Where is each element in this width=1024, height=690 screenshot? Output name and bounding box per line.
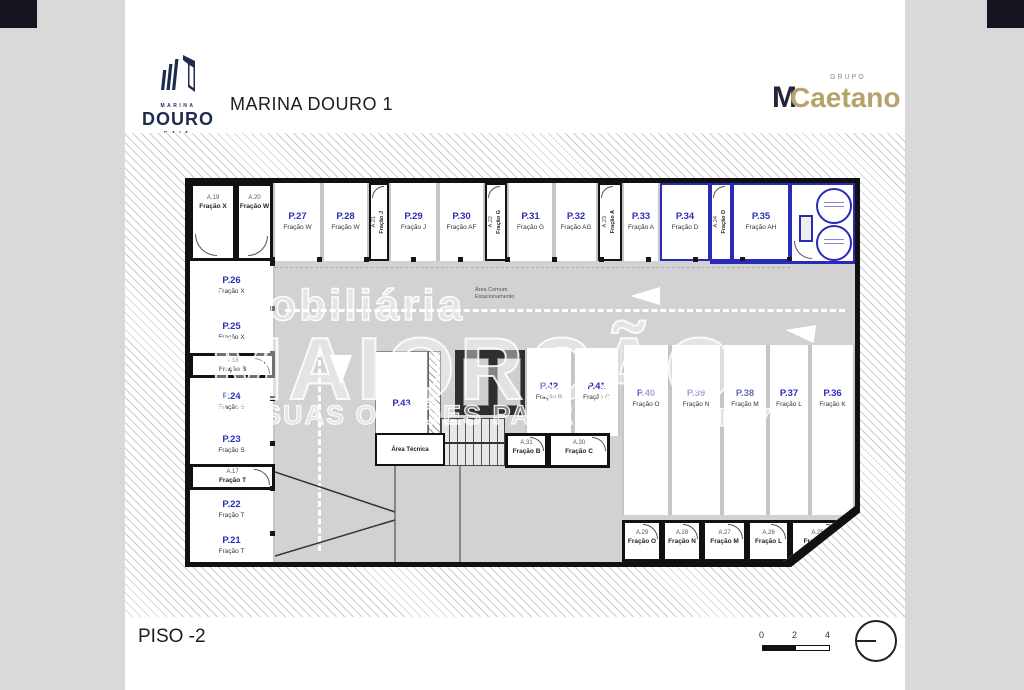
- door-arc: [254, 469, 270, 485]
- parking-p33: P.33 Fração A: [622, 183, 660, 261]
- door-arc: [713, 186, 725, 198]
- parking-p35: P.35 Fração AH: [732, 183, 790, 261]
- storage-a29: A.29 Fração O: [622, 520, 662, 562]
- door-arc: [771, 524, 786, 539]
- elevator-cab: [497, 358, 521, 406]
- scale-tick-2: 2: [792, 630, 797, 640]
- right-margin-band: [905, 0, 1024, 690]
- elevator-cab: [463, 358, 489, 406]
- parking-p37: P.37 Fração L: [768, 345, 810, 515]
- storage-a24: A.24 Fração D: [710, 183, 732, 261]
- storage-a19: A.19 Fração X: [190, 183, 236, 261]
- storage-a18: A.18 Fração S: [190, 353, 275, 378]
- parking-p25: P.25 Fração X: [190, 311, 275, 353]
- north-indicator-icon: [855, 620, 897, 662]
- lane-arrow-icon: [630, 287, 660, 305]
- door-arc: [530, 437, 544, 451]
- ramp: [275, 466, 620, 562]
- floor-label: PISO -2: [138, 626, 206, 648]
- grupo-mcaetano-logo: GRUPO M Caetano: [772, 74, 922, 115]
- stair-rail: [441, 442, 504, 444]
- parking-p36: P.36 Fração K: [810, 345, 855, 515]
- storage-a20: A.20 Fração W: [236, 183, 273, 261]
- equipment-box-icon: [799, 215, 813, 242]
- storage-a31: A.31 Fração B: [505, 433, 548, 468]
- document-page: { "header": { "logo": { "marina": "MARIN…: [0, 0, 1024, 690]
- grupo-label: GRUPO: [830, 74, 922, 81]
- door-arc: [601, 186, 613, 198]
- door-arc: [372, 186, 384, 198]
- scale-tick-0: 0: [759, 630, 764, 640]
- door-arc: [488, 186, 500, 198]
- door-arc: [254, 358, 270, 374]
- stairwell: [440, 418, 505, 466]
- parking-p41: P.41 Fração C: [573, 348, 620, 436]
- technical-tank-room: [790, 183, 855, 263]
- page-title: MARINA DOURO 1: [230, 94, 393, 115]
- door-arc: [248, 236, 268, 256]
- buildings-icon: [155, 52, 201, 96]
- storage-a26: A.26 Fração L: [747, 520, 790, 562]
- logo-douro-text: DOURO: [138, 109, 218, 130]
- lane-marking: [285, 309, 845, 312]
- top-right-corner-block: [987, 0, 1024, 28]
- parking-p23: P.23 Fração S: [190, 425, 275, 464]
- scale-tick-4: 4: [825, 630, 830, 640]
- parking-p38: P.38 Fração M: [722, 345, 768, 515]
- parking-p39: P.39 Fração N: [670, 345, 722, 515]
- storage-a21: A.21 Fração J: [369, 183, 389, 261]
- parking-p32: P.32 Fração AG: [554, 183, 598, 261]
- aisle-label: Área Comum Estacionamento: [475, 287, 514, 300]
- door-arc: [195, 234, 217, 256]
- door-arc: [794, 241, 812, 259]
- lane-arrow-down-icon: [330, 355, 352, 385]
- storage-a27: A.27 Fração M: [702, 520, 747, 562]
- door-arc: [683, 524, 698, 539]
- storage-a17: A.17 Fração T: [190, 464, 275, 490]
- scale-bar: 0 2 4: [746, 630, 846, 660]
- lane-arrow-icon: [784, 321, 816, 343]
- floor-plan-interior: A.19 Fração X A.20 Fração W P.27 Fração …: [190, 183, 855, 562]
- parking-p31: P.31 Fração G: [507, 183, 554, 261]
- water-tank-icon: [816, 188, 852, 224]
- parking-p27: P.27 Fração W: [273, 183, 322, 261]
- storage-a30: A.30 Fração C: [548, 433, 610, 468]
- grupo-caetano-text: Caetano: [790, 82, 900, 114]
- door-arc: [592, 437, 606, 451]
- door-arc: [728, 524, 743, 539]
- parking-p42: P.42 Fração B: [525, 348, 573, 436]
- aisle-guide-line: [275, 267, 790, 268]
- parking-p21: P.21 Fração T: [190, 530, 275, 562]
- parking-p30: P.30 Fração AF: [438, 183, 485, 261]
- technical-area-room: Área Técnica: [375, 433, 445, 466]
- storage-a22: A.22 Fração G: [485, 183, 507, 261]
- floor-plan: A.19 Fração X A.20 Fração W P.27 Fração …: [185, 178, 860, 567]
- parking-p40: P.40 Fração O: [622, 345, 670, 515]
- elevator-core: [455, 350, 530, 415]
- parking-p29: P.29 Fração J: [389, 183, 438, 261]
- scale-bar-segments: [762, 645, 830, 651]
- parking-p28: P.28 Fração W: [322, 183, 369, 261]
- storage-a23: A.23 Fração A: [598, 183, 622, 261]
- parking-p34: P.34 Fração D: [660, 183, 710, 261]
- storage-a28: A.28 Fração N: [662, 520, 702, 562]
- top-left-corner-block: [0, 0, 37, 28]
- parking-p26: P.26 Fração X: [190, 261, 275, 311]
- water-tank-icon: [816, 225, 852, 261]
- blue-wall-accent: [710, 261, 855, 264]
- left-margin-band: [0, 0, 125, 690]
- parking-p22: P.22 Fração T: [190, 490, 275, 530]
- marina-douro-logo: MARINA DOURO GAIA: [138, 52, 218, 137]
- parking-p24: P.24 Fração S: [190, 378, 275, 425]
- door-arc: [643, 524, 658, 539]
